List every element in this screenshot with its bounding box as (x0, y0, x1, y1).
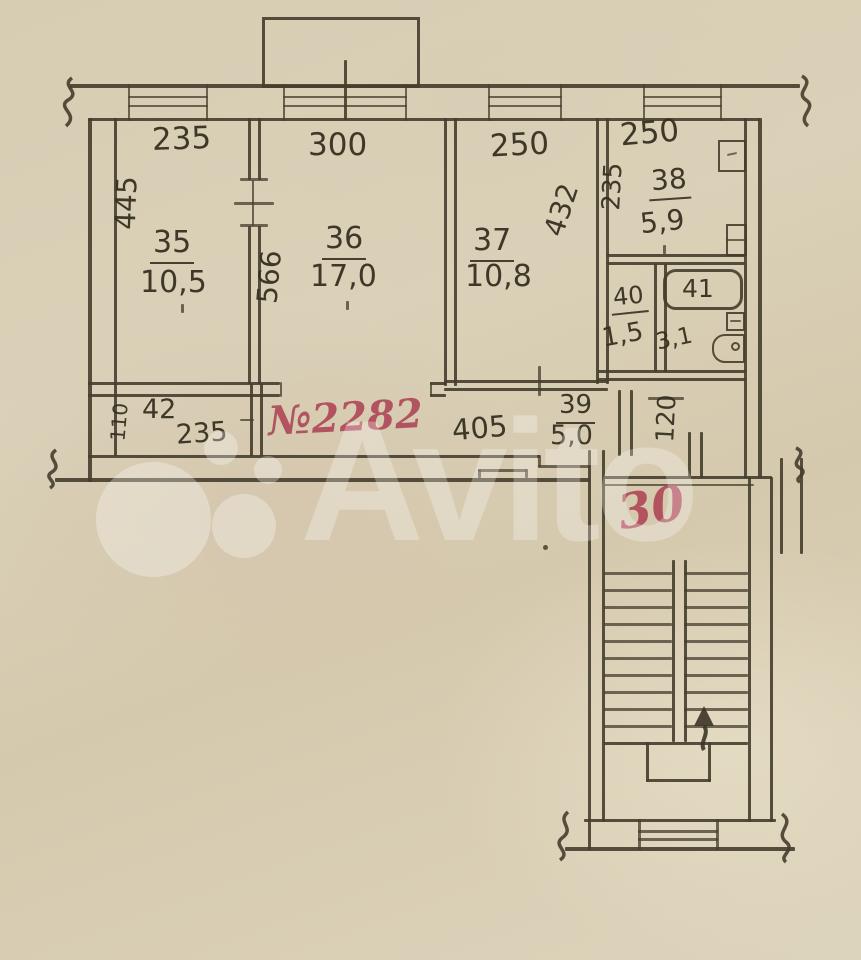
room-38-area: 5,9 (639, 206, 686, 239)
stair-step (604, 708, 672, 711)
stair-step (604, 572, 672, 575)
window-line (128, 105, 208, 107)
stair-step (684, 657, 748, 660)
apartment-number-red: №2282 (267, 394, 424, 442)
partition-35-36 (248, 226, 251, 384)
window-jamb (283, 84, 285, 121)
window-line (283, 105, 407, 107)
wall-break-mark (552, 810, 576, 862)
room-40-area: 1,5 (600, 319, 645, 352)
window-jamb (488, 84, 490, 121)
bath-sink-line (730, 320, 741, 322)
right-wall-stub (780, 458, 783, 554)
bath-block-bottom-wall (598, 370, 746, 373)
window-jamb (560, 84, 562, 121)
window-line (643, 96, 722, 98)
stair-right-wall (770, 477, 773, 822)
kitchen-bottom-wall (607, 262, 745, 265)
kitchen-sink-line (726, 239, 747, 241)
stair-step (604, 725, 672, 728)
room-38-number: 38 (647, 165, 690, 196)
window-jamb (206, 84, 208, 121)
dim-top-250-a: 250 (489, 128, 550, 162)
stair-step (604, 674, 672, 677)
dim-tick-39 (538, 366, 541, 396)
stair-lower-landing (646, 779, 711, 782)
stair-bottom-wall-outer (565, 847, 795, 851)
window-jamb (638, 819, 641, 850)
kitchen-bottom-wall (607, 254, 745, 257)
room-37-number: 37 (470, 226, 514, 256)
stair-step (684, 623, 748, 626)
wall-left-outer (88, 118, 92, 482)
ink-dot (543, 545, 548, 550)
stair-direction-arrow-icon (686, 700, 722, 754)
window-line (638, 830, 718, 833)
stair-step (604, 640, 672, 643)
stair-step (604, 623, 672, 626)
vestibule-door-jamb (688, 432, 691, 478)
wall-right-outer (758, 118, 762, 478)
partition-35-36 (248, 118, 251, 180)
door-jamb (280, 382, 282, 397)
threshold-notch (478, 469, 527, 472)
stair-step (684, 691, 748, 694)
room-41-area: 3,1 (654, 324, 695, 354)
door-jamb (240, 224, 268, 227)
dim-tick (240, 419, 254, 421)
dim-top-250-b: 250 (619, 115, 681, 151)
stove-icon (718, 140, 746, 172)
window-line (488, 96, 562, 98)
window-line (643, 105, 722, 107)
window-line (488, 105, 562, 107)
bath-block-bottom-wall (598, 378, 746, 381)
partition-wc-bath (654, 264, 657, 372)
partition-36-37 (444, 118, 447, 386)
room-40-number: 40 (609, 282, 648, 310)
stair-lower-landing (646, 742, 649, 782)
window-jamb (716, 819, 719, 850)
dim-top-300: 300 (308, 130, 367, 161)
stair-step (684, 640, 748, 643)
stair-step (684, 572, 748, 575)
stair-right-wall (748, 477, 751, 822)
partition-37-kitchen (596, 118, 599, 384)
dim-top-235: 235 (151, 123, 211, 156)
stair-step (604, 691, 672, 694)
dim-tick (663, 245, 666, 254)
room37-bottom-wall (444, 380, 608, 383)
stair-step (684, 589, 748, 592)
room-35-area: 10,5 (140, 268, 207, 298)
window-jamb (720, 84, 722, 121)
dim-kitchen-235: 235 (598, 162, 625, 211)
watermark-logo-circle (212, 494, 276, 558)
stair-step (604, 589, 672, 592)
balcony-door-line (344, 60, 347, 120)
entrance-step (538, 465, 590, 468)
partition-36-37 (454, 118, 457, 386)
balcony-outline (262, 17, 420, 88)
room-37-area: 10,8 (465, 262, 532, 292)
stair-left-wall (602, 450, 605, 822)
dim-tick (346, 301, 349, 310)
door-jamb (430, 382, 432, 397)
stair-step (684, 674, 748, 677)
room-39-number: 39 (556, 392, 595, 418)
room-42-number: 42 (142, 396, 176, 423)
wall-break-mark (56, 76, 82, 128)
door-jamb (240, 178, 268, 181)
landing-top-wall (604, 476, 772, 479)
stair-step (604, 657, 672, 660)
stair-step (604, 606, 672, 609)
dim-432: 432 (540, 180, 583, 239)
wall-break-mark (42, 448, 64, 490)
window-line (283, 96, 407, 98)
toilet-tank-mark (731, 342, 740, 351)
wall-bottom-outer (55, 478, 590, 482)
stair-step (684, 606, 748, 609)
wall-bottom-inner (88, 455, 540, 458)
wall-right-inner (744, 118, 747, 478)
dim-120: 120 (652, 394, 679, 443)
window-line (638, 838, 718, 841)
window-jamb (128, 84, 130, 121)
room-36-number: 36 (322, 224, 366, 254)
toilet-icon (712, 334, 745, 363)
wall-break-mark (786, 446, 812, 484)
stair-bottom-wall-inner (584, 819, 776, 822)
room-35-number: 35 (150, 228, 194, 258)
dim-tick (181, 304, 184, 313)
hall-right-wall (618, 390, 621, 456)
wall-top-outer (70, 84, 800, 88)
window-jamb (405, 84, 407, 121)
room-39-area: 5,0 (550, 422, 593, 449)
dim-566: 566 (253, 249, 286, 305)
dim-tick (234, 202, 274, 205)
floor-plan-scan: 235 300 250 250 445 566 432 235 110 235 … (0, 0, 861, 960)
room-36-area: 17,0 (310, 262, 377, 292)
stair-landing-number-red: 30 (614, 479, 688, 538)
rooms-bottom-wall (430, 394, 446, 397)
threshold-notch (525, 469, 528, 478)
stair-bottom-line (604, 742, 748, 745)
wall-break-mark (772, 812, 798, 864)
dim-closet-235: 235 (175, 418, 228, 449)
threshold-notch (478, 469, 481, 478)
dim-hall-405: 405 (451, 412, 509, 446)
partition-35-36 (258, 118, 261, 180)
wall-break-mark (792, 74, 818, 128)
window-line (128, 96, 208, 98)
hall-right-wall (630, 390, 633, 456)
closet-42-wall (260, 384, 263, 456)
vestibule-door-jamb (700, 432, 703, 478)
dim-closet-110: 110 (107, 402, 130, 442)
room-41-number: 41 (682, 276, 714, 301)
dim-left-445: 445 (112, 176, 142, 230)
stair-left-wall (588, 450, 591, 850)
stair-stringer (672, 560, 675, 742)
